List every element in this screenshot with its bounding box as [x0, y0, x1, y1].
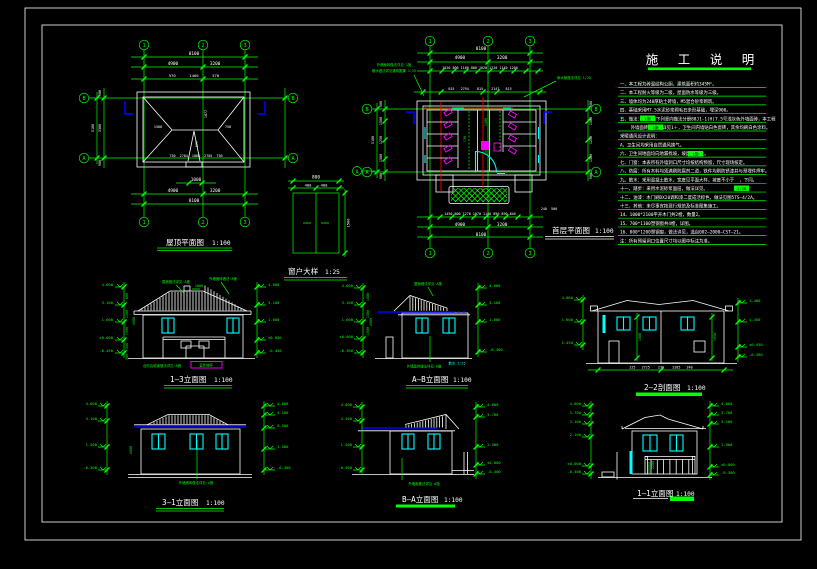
window-marks	[425, 108, 539, 174]
note-line: 外墙面砖分格 详见1＋，卫生间内墙贴白色瓷砖，其余均刷白色涂料。	[620, 124, 770, 131]
note-line: 采暖通风设计说明：	[620, 133, 660, 140]
level-triangle-icon	[709, 412, 719, 415]
dim: 4900	[132, 317, 136, 325]
level-label: 1.600	[562, 317, 574, 322]
level-triangle-icon	[98, 418, 108, 421]
dim: 4900 3200	[455, 55, 508, 61]
level-triangle-icon	[582, 463, 592, 466]
drawing-scale: 1:100	[212, 240, 231, 247]
level-label: 4.600	[721, 401, 733, 406]
level-label: 3.100	[86, 416, 98, 421]
drawing-title: 3—1立面图	[162, 497, 199, 507]
level-label: -0.300	[277, 465, 291, 470]
note-line: 16、800*1200塑钢窗，做法详见，选自002—2000—CST—21。	[620, 229, 743, 236]
dim-label: 1250	[589, 136, 593, 144]
dim-label: 600	[125, 293, 129, 299]
level-triangle-icon	[477, 285, 487, 288]
note-line: 九、散水：采用混凝土散水，宽度见平面大样，坡度不小于 ，下同。	[620, 176, 757, 183]
axis-bubble-label: A	[291, 156, 295, 162]
level-label: -0.300	[489, 347, 503, 352]
level-label: 2.100	[570, 432, 582, 437]
level-triangle-icon	[737, 319, 747, 322]
level-label: -0.450	[99, 348, 113, 353]
level-label: 1.600	[342, 317, 354, 322]
dim: 1500	[154, 125, 162, 129]
dim: 225 2725 230 2285 240	[629, 366, 692, 370]
note-line: 注：所有预留洞口位置尺寸均以图中标注为准。	[620, 237, 712, 244]
note: 屋面做法详见·A施	[414, 281, 442, 286]
level-triangle-icon	[256, 284, 266, 287]
dim: 1000	[191, 177, 202, 183]
level-label: 3.100	[277, 423, 289, 428]
level-label: 1.450	[562, 340, 574, 345]
dim: 1400	[484, 118, 488, 126]
drawing-scale: 1:100	[595, 228, 614, 235]
level-label: 3.700	[570, 410, 582, 415]
level-triangle-icon	[475, 444, 485, 447]
note: 屋面做法详见·A施	[162, 279, 190, 284]
door	[386, 337, 393, 358]
drawing-scale: 1:100	[444, 497, 463, 504]
level-triangle-icon	[256, 302, 266, 305]
dim: 8100	[189, 51, 200, 57]
roof-profile	[622, 415, 703, 429]
dim: 750	[225, 125, 231, 129]
note: 散水 1:25	[449, 361, 466, 366]
eave-band	[134, 311, 251, 315]
note-highlight-text: 3施	[652, 125, 658, 130]
note-highlight-text: 1:30	[737, 186, 747, 191]
drawing-scale: 1:25	[325, 269, 340, 276]
note-line: 14、1000*2100平开木门共2樘，数量2。	[620, 211, 703, 218]
drawing-title: 首层平面图	[552, 225, 590, 235]
level-label: -0.300	[339, 348, 353, 353]
dim: 4900 3200	[168, 61, 221, 67]
dim: 1877	[204, 110, 208, 118]
level-triangle-icon	[582, 403, 592, 406]
wall-outline	[390, 431, 452, 474]
level-label: 1.500	[277, 444, 289, 449]
level-label: 4.600	[489, 283, 501, 288]
note: 雨水管做法详见 1/25	[557, 75, 591, 80]
axis-bubble-label: B	[82, 96, 85, 102]
note-line: 十一、踏步：采用水泥砂浆面层，做法详见。	[620, 185, 708, 192]
level-triangle-icon	[574, 319, 584, 322]
elevation-a-b: 屋面做法详见·A施 外墙面砖做法详见·A施 散水 1:25 4900 A—B立面…	[339, 281, 503, 388]
dim: 815 2794 815 2147 815	[448, 87, 511, 91]
level-label: -0.300	[338, 465, 352, 470]
level-triangle-icon	[354, 302, 364, 305]
opening	[694, 341, 705, 352]
level-label: -0.300	[567, 469, 581, 474]
level-label: ±0.450	[749, 342, 763, 347]
level-label: 3.700	[487, 412, 499, 417]
note: 台阶及坡道做法详见·A施	[143, 363, 182, 368]
dim: 1900	[638, 333, 642, 341]
level-label: 4.600	[341, 402, 353, 407]
level-triangle-icon	[582, 421, 592, 424]
note-line: 一、本工程为砖混结构公厕，建筑面积约345M²。	[620, 80, 717, 87]
level-label: 3.100	[721, 419, 733, 424]
entry-wall	[515, 175, 532, 192]
note: 外墙面做法详见·A施	[408, 481, 440, 486]
dim-label: 900	[98, 90, 102, 96]
note-line: 三、墙体均为240厚粘土砖墙，M5混合砂浆砌筑。	[620, 98, 717, 105]
dim: 5100	[371, 136, 375, 144]
level-label: 4.600	[277, 401, 289, 406]
dim-label: 1900	[125, 327, 129, 335]
drawing-title: 窗户大样	[288, 266, 319, 276]
dim-label: 900	[589, 173, 593, 179]
roof-profile	[405, 415, 459, 430]
dim: 4900	[369, 318, 373, 326]
squat-toilet-fixture	[508, 111, 516, 118]
level-triangle-icon	[709, 403, 719, 406]
drawing-title: 2—2剖面图	[644, 382, 681, 392]
dim-label: 900	[589, 101, 593, 107]
dim: 1500	[346, 218, 351, 228]
level-triangle-icon	[354, 285, 364, 288]
dim-label: 900	[98, 160, 102, 166]
level-triangle-icon	[115, 284, 125, 287]
level-triangle-icon	[115, 302, 125, 305]
dim: 400 400	[305, 183, 329, 188]
level-triangle-icon	[265, 412, 275, 415]
elevation-b-a: 外墙面做法详见·A施 B—A立面图 1:100 4.6003.1001.500-…	[338, 402, 501, 508]
note-line: 十三、其他：未尽事宜按现行规范及标准图集施工。	[620, 202, 721, 209]
window-strip	[630, 451, 633, 474]
level-triangle-icon	[98, 444, 108, 447]
drawing-title: 1—3立面图	[170, 374, 207, 384]
level-label: 3.100	[342, 300, 354, 305]
dim: 750 2784 1068 2705 750	[169, 154, 222, 158]
level-label: ±0.000	[339, 334, 353, 339]
axis-bubble-label: 1	[142, 220, 145, 226]
level-triangle-icon	[354, 336, 364, 339]
dim: 570 1460 570	[169, 73, 220, 78]
section-cut-lines	[423, 97, 513, 192]
dim: 2200	[651, 461, 655, 469]
window-detail: 800 400 400 1500 A 窗户大样 1:25	[284, 167, 375, 281]
mat-hatch-line	[508, 188, 524, 204]
window-strip	[603, 315, 606, 333]
level-triangle-icon	[737, 344, 747, 347]
wall-outline	[402, 313, 468, 358]
dim-label: 1500	[589, 117, 593, 125]
sink-fixture	[481, 141, 489, 150]
note-line: A、卫生间均采用自然通风换气。	[620, 141, 684, 148]
level-label: ±0.000	[268, 335, 282, 340]
porch-rail	[617, 452, 695, 480]
level-triangle-icon	[98, 467, 108, 470]
note-highlight-text: 1施	[644, 116, 650, 121]
note-line: 二、本工程耐火等级为二级，屋面防水等级为三级。	[620, 89, 721, 96]
note-line: 七、门窗：本表所有外墙洞口尺寸均按结构预留，尺寸现场核定。	[620, 159, 747, 166]
level-triangle-icon	[737, 354, 747, 357]
ground-line	[128, 475, 252, 478]
level-label: 4.100	[277, 410, 289, 415]
squat-toilet-fixture	[508, 123, 516, 130]
section-2-2: 1900 1950 225 2725 230 2285 240 2—2剖面图 1…	[562, 295, 764, 396]
level-triangle-icon	[353, 444, 363, 447]
level-label: 4.600	[268, 282, 280, 287]
dim: 5100	[91, 124, 95, 132]
title-underline-bar	[396, 505, 455, 508]
squat-toilet-fixture	[508, 147, 516, 154]
roof-profile	[394, 296, 447, 312]
title-underline-bar	[636, 393, 702, 397]
squat-toilet-fixture	[508, 135, 516, 142]
step	[602, 472, 614, 477]
level-label: -0.300	[487, 469, 501, 474]
level-triangle-icon	[582, 434, 592, 437]
axis-bubble-label: 1	[428, 39, 431, 45]
level-triangle-icon	[256, 350, 266, 353]
level-triangle-icon	[265, 446, 275, 449]
dim-label: 1250	[379, 136, 383, 144]
level-triangle-icon	[115, 319, 125, 322]
note: 室外地坪	[199, 363, 213, 368]
level-triangle-icon	[98, 403, 108, 406]
level-label: -0.300	[83, 465, 97, 470]
axis-bubble-label: 3	[528, 39, 531, 45]
drawing-title: 1—1立面图	[637, 488, 674, 498]
level-triangle-icon	[354, 319, 364, 322]
level-label: 4.600	[86, 401, 98, 406]
level-label: 1.400	[749, 298, 761, 303]
level-label: 4.600	[102, 282, 114, 287]
leader-line	[414, 75, 556, 97]
elevation-1-3: 屋面做法详见·A施 外墙面砖做法·A施 台阶及坡道做法详见·A施 室外地坪 10…	[99, 276, 282, 388]
level-triangle-icon	[115, 350, 125, 353]
axis-bubble-label: 3	[243, 43, 246, 49]
dim: 8100	[476, 46, 487, 52]
note: 外墙面砖做法详见·A施	[407, 364, 442, 369]
level-label: 1.500	[341, 442, 353, 447]
note-line: 15、700*1100塑钢窗共4樘，详图。	[620, 220, 693, 227]
level-triangle-icon	[115, 337, 125, 340]
note-line: 八、防腐：所有木料均须满刷防腐剂二道，铁件均刷防锈漆并与预埋件焊牢。	[620, 168, 769, 175]
level-label: ±0.000	[487, 460, 501, 465]
dim: 800	[312, 175, 320, 181]
roof-notch	[186, 162, 202, 167]
note: 外墙面砖做法详见·A施	[179, 480, 214, 485]
level-label: 3.100	[341, 416, 353, 421]
roof-outline	[143, 97, 244, 162]
level-label: 1.500	[487, 442, 499, 447]
dim-label: 1500	[379, 117, 383, 125]
drawing-title: 屋顶平面图	[166, 238, 204, 247]
level-label: 4.600	[562, 295, 574, 300]
wall-outline	[143, 315, 243, 358]
drawing-scale: 1:100	[687, 385, 706, 392]
drawing-title: B—A立面图	[402, 494, 439, 504]
notes-title: 施 工 说 明	[646, 52, 761, 67]
level-label: 3.100	[489, 300, 501, 305]
axis-bubble-label: B	[594, 107, 597, 113]
level-triangle-icon	[477, 302, 487, 305]
level-label: 4.600	[570, 401, 582, 406]
dim: 977	[195, 141, 199, 147]
note: 外墙面砖做法详见·1施	[377, 62, 412, 67]
level-label: 3.100	[268, 300, 280, 305]
detail-mark: A	[355, 170, 359, 176]
level-label: 1.600	[268, 317, 280, 322]
level-label: 1.900	[721, 442, 733, 447]
axis-bubble-label: B	[365, 107, 368, 113]
dim-label: 1500	[366, 310, 370, 318]
elevation-3-1: 外墙面砖做法详见·A施 4900 3—1立面图 1:100 4.6003.100…	[83, 401, 291, 511]
axis-bubble-label: 2	[486, 39, 489, 45]
canopy-outline	[417, 101, 546, 180]
level-triangle-icon	[709, 464, 719, 467]
level-triangle-icon	[737, 300, 747, 303]
dim: 4900	[129, 446, 133, 454]
dim-label: 1500	[125, 310, 129, 318]
level-triangle-icon	[709, 444, 719, 447]
floor-plan: 8100 4900 3200 1020 800 1160 800 1020 12…	[362, 36, 614, 258]
dim-label: 1900	[366, 327, 370, 335]
dim: 8100	[189, 198, 200, 204]
construction-notes: 施 工 说 明 一、本工程为砖混结构公厕，建筑面积约345M²。二、本工程耐火等…	[618, 52, 776, 244]
dim: 1950	[713, 333, 717, 341]
drawing-scale: 1:100	[206, 500, 225, 507]
level-triangle-icon	[265, 467, 275, 470]
note-line: 十二、油漆：木门刷DX20调和漆二度成活棕色，做法见图5TS—4/2A。	[620, 194, 757, 201]
drawing-scale: 1:100	[453, 377, 472, 384]
level-label: 1.450	[749, 317, 761, 322]
level-triangle-icon	[574, 342, 584, 345]
level-label: 4.600	[487, 402, 499, 407]
level-triangle-icon	[574, 297, 584, 300]
note-highlight-text: 2施	[692, 151, 698, 156]
dim: 240 500	[541, 207, 557, 211]
level-triangle-icon	[709, 421, 719, 424]
axis-bubble-label: 3	[528, 251, 531, 257]
level-triangle-icon	[354, 350, 364, 353]
dim: 130	[463, 136, 467, 142]
ridge-vent	[184, 286, 190, 291]
door	[609, 341, 619, 363]
dim: 300	[125, 354, 129, 360]
axis-bubble-label: 2	[201, 220, 204, 226]
level-label: ±0.000	[721, 462, 735, 467]
dim: 1450 800 1270 1070 1140 890 890 840	[444, 212, 515, 216]
level-triangle-icon	[256, 337, 266, 340]
cad-sheet: 8100 4900 3200 570 1460 570 1000 4900 32…	[0, 0, 817, 569]
entry-wall	[436, 175, 453, 192]
level-label: 3.700	[721, 410, 733, 415]
level-label: 3.100	[570, 419, 582, 424]
note-line: 四、基础采用M7.5水泥砂浆砌毛石条形基础，埋深900。	[620, 107, 731, 114]
level-label: -0.450	[268, 348, 282, 353]
level-label: 4.600	[342, 283, 354, 288]
roof-profile	[147, 415, 228, 425]
mat-hatch-line	[508, 188, 524, 204]
axis-bubble-label: 2	[486, 251, 489, 257]
level-triangle-icon	[353, 418, 363, 421]
axis-bubble-label: 1	[428, 251, 431, 257]
drawing-title: A—B立面图	[412, 374, 449, 384]
dim-label: 1500	[125, 343, 129, 351]
level-triangle-icon	[475, 404, 485, 407]
note: 外墙面砖做法·A施	[209, 276, 237, 281]
level-triangle-icon	[582, 471, 592, 474]
level-label: 1.600	[489, 317, 501, 322]
level-label: ±0.000	[99, 335, 113, 340]
level-triangle-icon	[353, 404, 363, 407]
level-triangle-icon	[477, 319, 487, 322]
title-underline-bar	[670, 497, 694, 502]
dim: 1000	[195, 284, 203, 288]
level-label: 3.100	[102, 300, 114, 305]
axis-bubble-label: A	[82, 156, 86, 162]
porch	[163, 337, 225, 358]
axis-bubble-label: A	[594, 170, 598, 176]
dim-label: 1500	[366, 293, 370, 301]
level-triangle-icon	[582, 412, 592, 415]
interior-wall-face	[427, 110, 536, 171]
level-triangle-icon	[477, 349, 487, 352]
level-label: -0.300	[749, 352, 763, 357]
level-triangle-icon	[256, 319, 266, 322]
level-triangle-icon	[265, 425, 275, 428]
axis-bubble-label: 2	[201, 43, 204, 49]
dim: 1020 800 1160 800 1020 1220 1140 1200	[442, 66, 518, 70]
level-label: 1.500	[86, 442, 98, 447]
wall-outline	[632, 431, 697, 474]
dim-label: 1500	[379, 154, 383, 162]
elevation-1-1: 2200 1—1立面图 1:100 4.6003.7003.1002.100±0…	[567, 401, 735, 501]
notes-title-underline	[648, 68, 751, 71]
dim-label: 3300	[98, 124, 102, 132]
dim: 4900 3200	[168, 188, 221, 194]
note: 散水做法详见通用图集 1:25	[372, 68, 416, 73]
axis-bubble-label: 3	[243, 220, 246, 226]
roof-hip-lines	[143, 97, 244, 162]
level-label: ±0.000	[567, 461, 581, 466]
roof-profile	[592, 301, 729, 312]
axis-bubble-label: 1	[142, 43, 145, 49]
axis-bubble-label: B	[291, 96, 294, 102]
level-triangle-icon	[475, 471, 485, 474]
drawing-scale: 1:100	[214, 377, 233, 384]
level-triangle-icon	[475, 462, 485, 465]
roof-plan: 8100 4900 3200 570 1460 570 1000 4900 32…	[79, 40, 298, 250]
level-triangle-icon	[709, 472, 719, 475]
level-triangle-icon	[475, 414, 485, 417]
dim-label: 900	[379, 101, 383, 107]
level-label: 1.600	[102, 317, 114, 322]
level-triangle-icon	[265, 403, 275, 406]
level-triangle-icon	[353, 467, 363, 470]
dim-label: 900	[379, 173, 383, 179]
level-label: -0.300	[721, 470, 735, 475]
leader-line	[428, 287, 433, 362]
dim-label: 1500	[589, 154, 593, 162]
window-mullion	[303, 193, 329, 253]
